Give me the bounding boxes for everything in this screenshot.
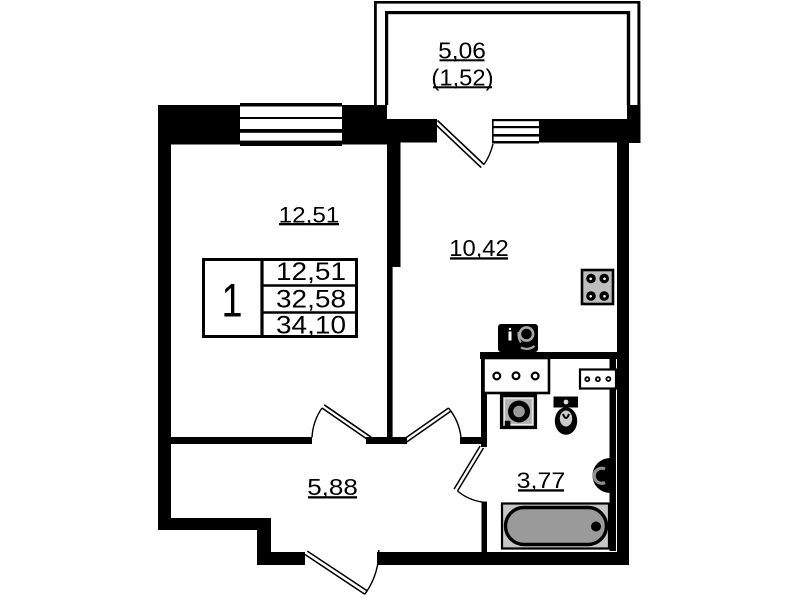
svg-text:12,51: 12,51 [276,258,346,286]
svg-text:1: 1 [222,274,243,327]
svg-text:5,88: 5,88 [307,474,358,500]
svg-text:32,58: 32,58 [276,285,346,313]
svg-text:34,10: 34,10 [276,311,346,339]
